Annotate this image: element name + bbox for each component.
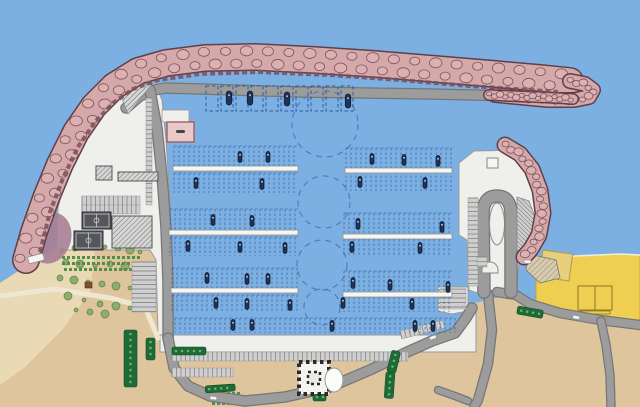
breakwater-stone (523, 78, 535, 88)
breakwater-stone (486, 92, 491, 96)
west-parking-strip (132, 262, 156, 312)
inner-revetment-spur (486, 91, 573, 102)
breakwater-stone (15, 254, 25, 262)
breakwater-stone (579, 79, 588, 86)
boat (214, 298, 218, 309)
boat (238, 152, 242, 163)
breakwater-stone (544, 81, 555, 90)
pontoon-pier (173, 166, 298, 171)
breakwater-stone (98, 84, 108, 92)
boat (260, 179, 264, 190)
hedge (127, 262, 130, 265)
shrub (57, 275, 63, 281)
fuel-dock-boat (176, 130, 185, 133)
breakwater-stone (82, 99, 93, 108)
boat (341, 298, 345, 309)
hedge (72, 262, 75, 265)
shrub (128, 286, 132, 290)
hedge (77, 256, 80, 259)
hedge (82, 256, 85, 259)
boat (350, 242, 354, 253)
green-strip (146, 338, 155, 360)
breakwater-stone (535, 225, 543, 232)
breakwater-stone (20, 233, 32, 243)
west-parking-row-1 (82, 196, 140, 205)
breakwater-stone (481, 75, 492, 84)
breakwater-stone (419, 70, 430, 79)
green-strip (384, 372, 395, 399)
boat (288, 300, 292, 311)
boat (266, 274, 270, 285)
pontoon-pier (343, 292, 452, 297)
loop-island (490, 203, 505, 245)
breakwater-stone (502, 141, 509, 147)
breakwater-stone (272, 59, 284, 69)
shrub (103, 245, 107, 249)
boat (370, 154, 374, 165)
hedge (84, 268, 87, 271)
pontoon-pier (171, 288, 298, 293)
hedge (122, 256, 125, 259)
south-parking-row-1 (172, 352, 408, 361)
breakwater-stone (579, 97, 585, 102)
hedge (114, 268, 117, 271)
breakwater-stone (41, 173, 53, 183)
breakwater-stone (34, 194, 44, 202)
breakwater-stone (113, 86, 124, 95)
hedge (77, 262, 80, 265)
breakwater-stone (525, 160, 533, 167)
boat (247, 91, 253, 105)
marina-site-plan (0, 0, 640, 407)
breakwater-stone (190, 62, 200, 70)
breakwater-stone (347, 52, 357, 60)
hedge (87, 256, 90, 259)
sports-court (82, 212, 111, 229)
hedge (117, 256, 120, 259)
breakwater-stone (410, 57, 420, 65)
breakwater-stone (519, 156, 526, 162)
pontoon-pier (343, 234, 452, 239)
hedge (99, 268, 102, 271)
hedge (94, 268, 97, 271)
breakwater-stone (552, 95, 557, 99)
breakwater-stone (503, 95, 508, 99)
south-parking-row-2 (172, 368, 233, 377)
boat (205, 273, 209, 284)
breakwater-stone (451, 60, 462, 69)
hedge (67, 256, 70, 259)
boat (345, 94, 351, 108)
fuel-dock-quay (162, 110, 189, 122)
hedge (89, 268, 92, 271)
hedge (82, 262, 85, 265)
boat (440, 222, 444, 233)
breakwater-stone (367, 53, 379, 63)
breakwater-stone (209, 59, 221, 69)
breakwater-stone (514, 65, 525, 74)
breakwater-stone (537, 187, 547, 195)
hatched-building (96, 166, 112, 180)
breakwater-stone (284, 48, 294, 56)
hedge (127, 256, 130, 259)
vehicle (210, 396, 217, 400)
quay-edge-ticks (146, 98, 152, 205)
boat (330, 321, 334, 332)
breakwater-stone (198, 47, 209, 56)
breakwater-stone (315, 63, 325, 71)
boat (238, 242, 242, 253)
green-strip (124, 330, 137, 387)
hedge (119, 268, 122, 271)
hedge (132, 256, 135, 259)
shrub (101, 310, 109, 318)
hedge (124, 268, 127, 271)
boat (388, 280, 392, 291)
breakwater-stone (492, 63, 504, 73)
breakwater-stone (520, 250, 530, 258)
breakwater-stone (514, 148, 524, 156)
hedge (87, 262, 90, 265)
breakwater-stone (132, 75, 142, 83)
shrub (128, 306, 132, 310)
boat (413, 321, 417, 332)
breakwater-stone (50, 154, 61, 163)
platform-structure (487, 158, 498, 168)
breakwater-stone (177, 50, 189, 60)
breakwater-stone (460, 73, 472, 83)
shrub (99, 281, 105, 287)
boat (231, 320, 235, 331)
hedge (69, 268, 72, 271)
boat (351, 278, 355, 289)
breakwater-stone (60, 136, 70, 144)
breakwater-stone (430, 58, 442, 68)
breakwater-stone (397, 68, 409, 78)
boat (446, 282, 450, 293)
breakwater-stone (220, 47, 230, 55)
hedge (112, 262, 115, 265)
breakwater-stone (536, 196, 543, 202)
boat (423, 178, 427, 189)
breakwater-stone (567, 77, 573, 82)
hedge (109, 268, 112, 271)
platform-parking-ladder (468, 198, 478, 286)
pontoon-pier (169, 230, 298, 235)
platform-parking-short (477, 257, 487, 267)
breakwater-stone (27, 213, 38, 222)
hedge (79, 268, 82, 271)
breakwater-stone (334, 63, 346, 73)
boat (358, 177, 362, 188)
shrub (112, 282, 120, 290)
hedge (92, 262, 95, 265)
breakwater-stone (535, 68, 545, 76)
boat (410, 299, 414, 310)
boat (356, 219, 360, 230)
boat (245, 299, 249, 310)
hedge (137, 256, 140, 259)
shrub (112, 302, 120, 310)
site-plan-drawing (0, 0, 640, 407)
hedge (107, 262, 110, 265)
breakwater-stone (530, 239, 537, 245)
boat (245, 274, 249, 285)
hedge (122, 262, 125, 265)
breakwater-stone (356, 65, 367, 74)
breakwater-stone (262, 47, 273, 56)
breakwater-stone (503, 77, 513, 85)
boat (402, 155, 406, 166)
breakwater-stone (156, 54, 166, 62)
hatched-building (112, 216, 152, 248)
green-strip (172, 347, 206, 355)
breakwater-stone (537, 210, 547, 218)
boat (284, 92, 290, 106)
boat (283, 243, 287, 254)
breakwater-stone (539, 203, 547, 210)
breakwater-stone (148, 68, 160, 78)
breakwater-stone (240, 46, 252, 56)
hatched-building (118, 172, 158, 181)
breakwater-stone (325, 50, 336, 59)
hedge (112, 256, 115, 259)
hedge (64, 268, 67, 271)
boat (436, 156, 440, 167)
hedge (102, 262, 105, 265)
boat (266, 152, 270, 163)
boat (226, 91, 232, 105)
shrub (97, 301, 103, 307)
shrub (70, 276, 78, 284)
breakwater-stone (519, 93, 524, 97)
breakwater-stone (115, 69, 127, 79)
breakwater-stone (568, 98, 573, 102)
shrub (82, 298, 86, 302)
breakwater-stone (304, 49, 316, 59)
breakwater-stone (377, 67, 387, 75)
breakwater-stone (526, 167, 536, 175)
boat (186, 241, 190, 252)
breakwater-stone (293, 61, 304, 70)
boat (250, 320, 254, 331)
boat (194, 178, 198, 189)
hedge (117, 262, 120, 265)
hedge (107, 256, 110, 259)
breakwater-stone (539, 219, 546, 225)
shrub (87, 309, 93, 315)
hedge (129, 268, 132, 271)
dome-structure (325, 368, 343, 392)
shrub (64, 292, 72, 300)
hedge (92, 256, 95, 259)
hedge (62, 262, 65, 265)
breakwater-stone (70, 116, 82, 126)
breakwater-stone (231, 59, 242, 68)
breakwater-stone (473, 62, 483, 70)
hedge (104, 268, 107, 271)
breakwater-stone (388, 55, 399, 64)
breakwater-stone (532, 181, 540, 188)
park-kiosk (85, 282, 92, 288)
hedge (97, 256, 100, 259)
breakwater-stone (535, 96, 540, 100)
breakwater-stone (136, 59, 147, 68)
breakwater-stone (252, 59, 262, 67)
hedge (102, 256, 105, 259)
vehicle (524, 260, 531, 264)
breakwater-stone (533, 174, 540, 180)
hedge (72, 256, 75, 259)
hedge (97, 262, 100, 265)
boat (431, 321, 435, 332)
hedge (74, 268, 77, 271)
breakwater-stone (440, 72, 450, 80)
sports-court (74, 231, 103, 250)
boat (211, 215, 215, 226)
shrub (138, 250, 142, 254)
shrub (74, 308, 78, 312)
breakwater-stone (169, 64, 180, 73)
checker-building (299, 362, 329, 394)
boat (418, 243, 422, 254)
boat (250, 216, 254, 227)
hedge (67, 262, 70, 265)
pontoon-pier (345, 168, 452, 173)
